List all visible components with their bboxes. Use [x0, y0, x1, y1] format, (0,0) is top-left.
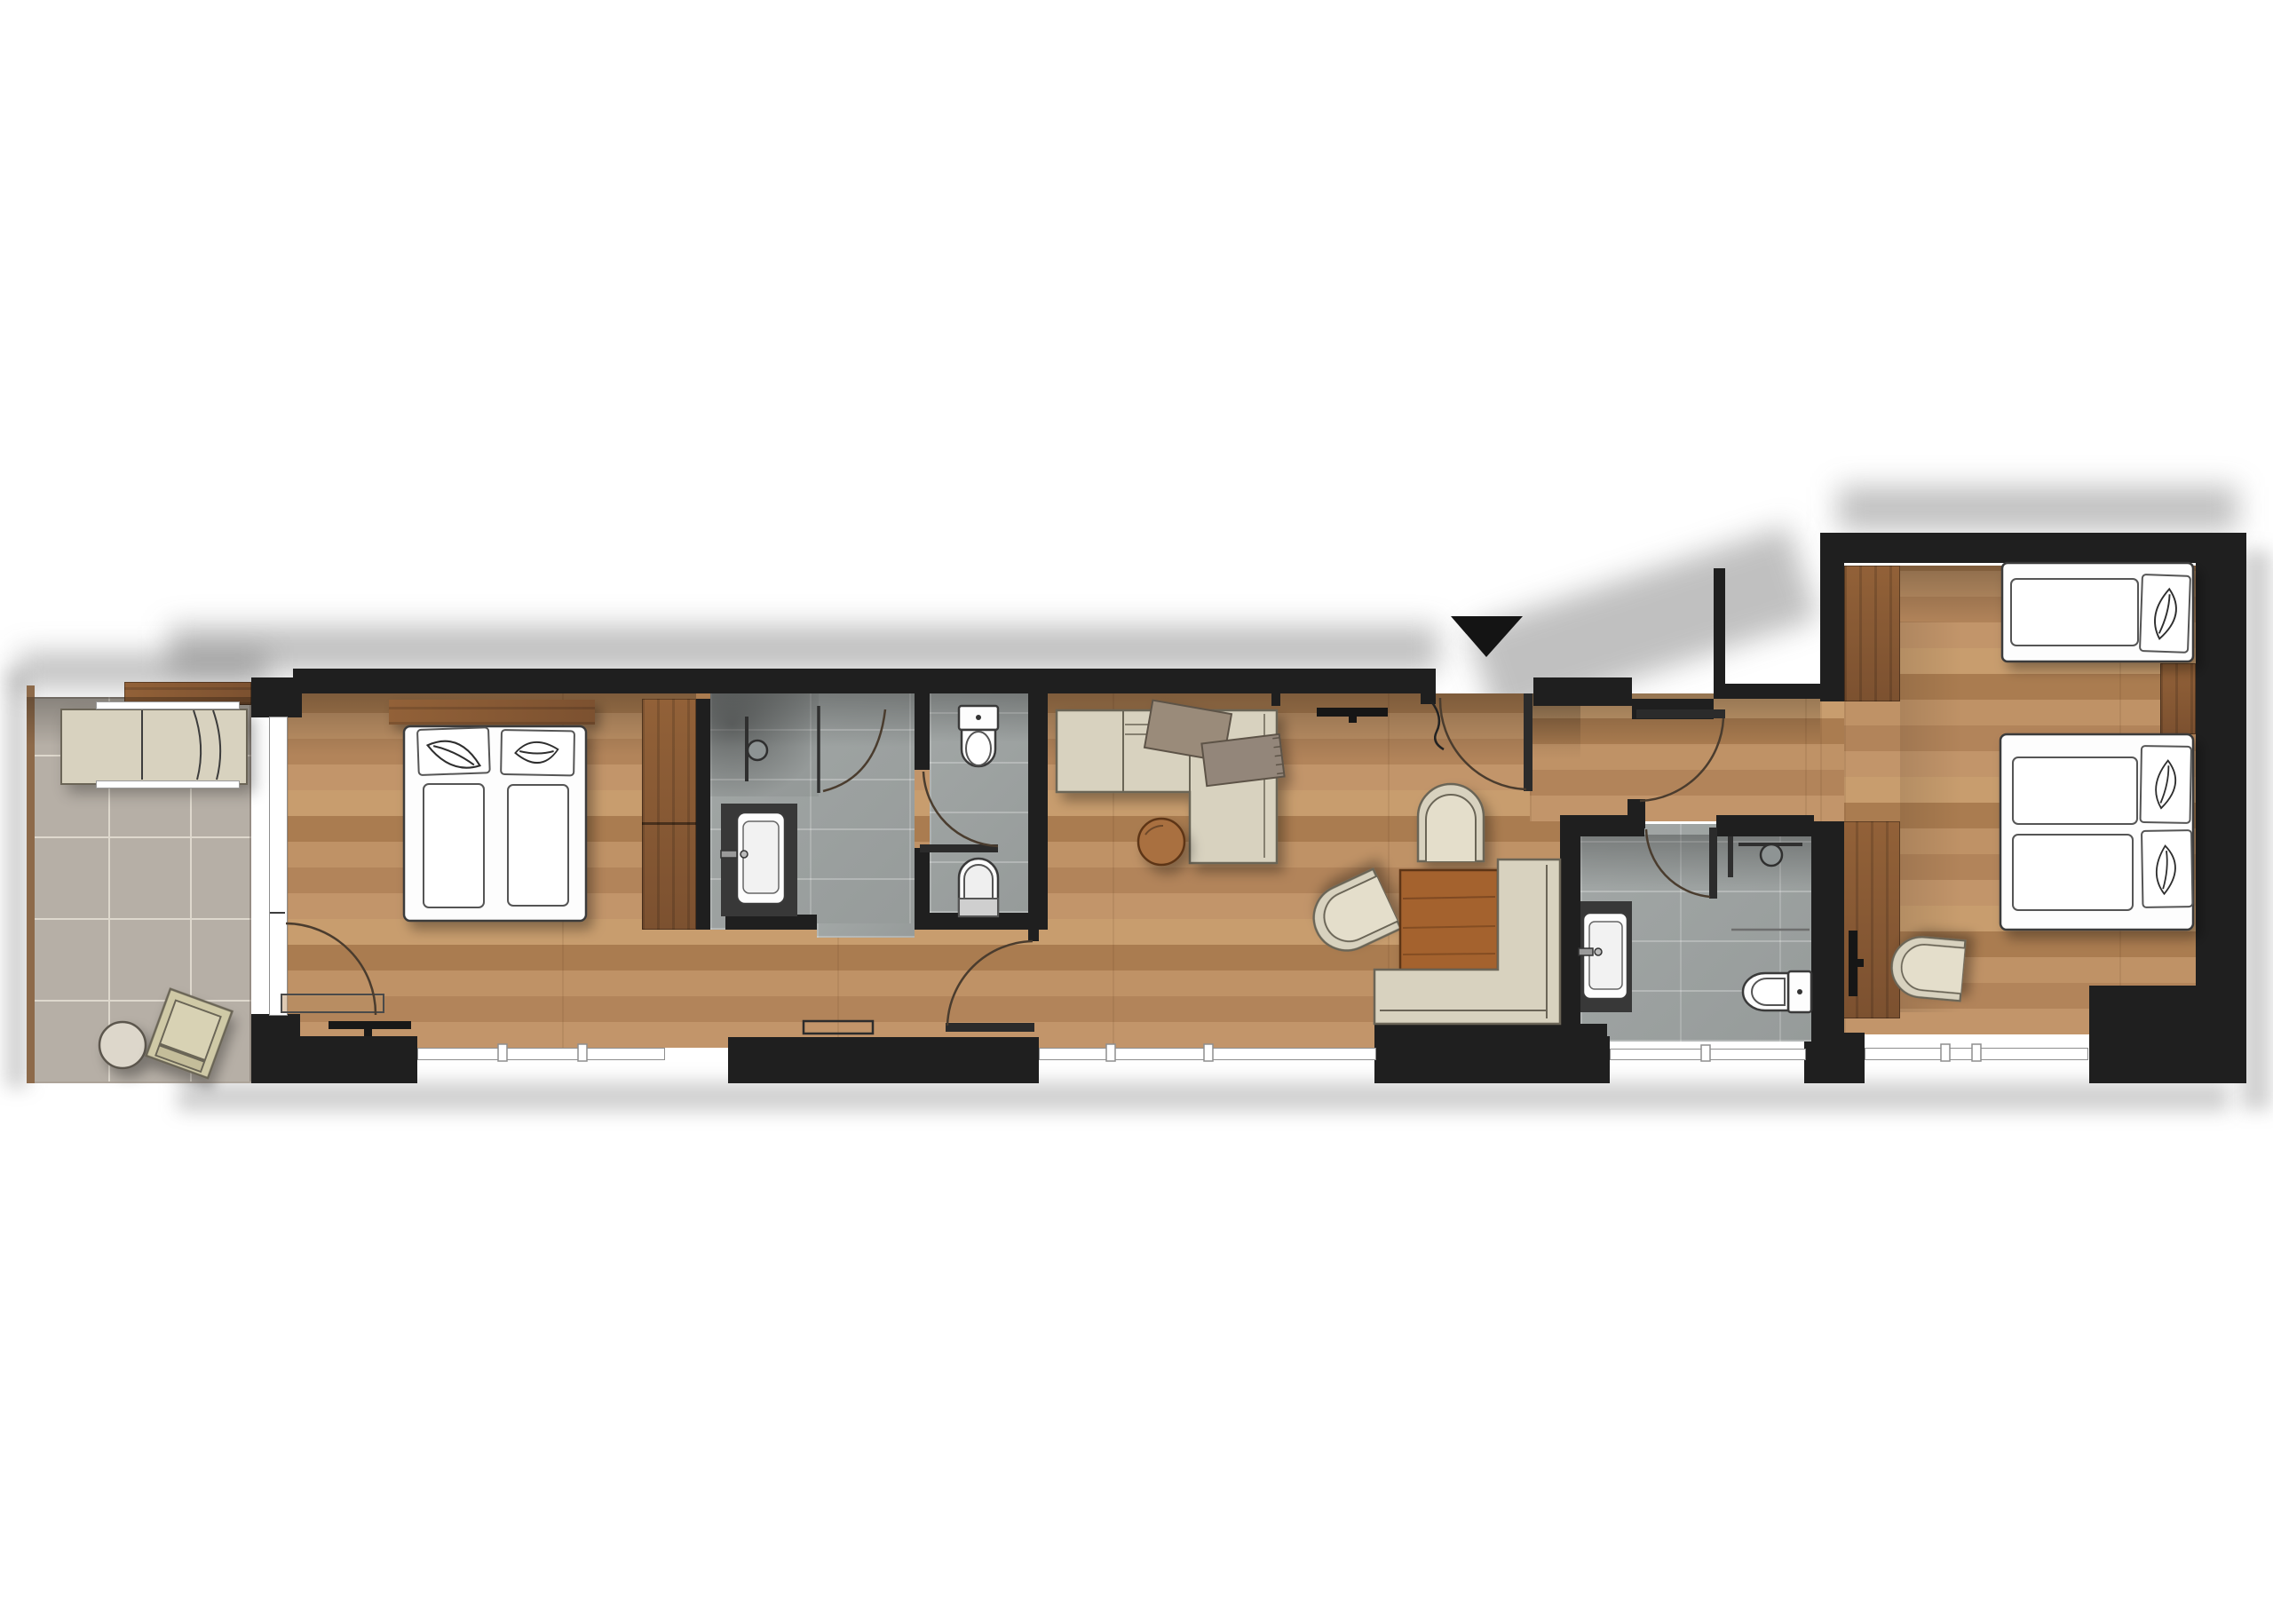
terrace-lounge-chair: [147, 989, 233, 1078]
bathroom1-vanity: [721, 804, 797, 916]
entrance-door: [1440, 693, 1532, 791]
door-wc: [920, 772, 998, 852]
bedroom1-low-console: [281, 994, 384, 1012]
bedroom1-wall-tv: [329, 1021, 411, 1036]
round-coffee-table: [1138, 819, 1184, 865]
plan-linework: [0, 0, 2273, 1624]
barrel-chair-west: [1303, 869, 1401, 962]
bathroom2-vanity: [1579, 901, 1632, 1012]
double-bed-bedroom2: [2000, 734, 2193, 930]
door-bathroom2: [1646, 828, 1717, 899]
living-wall-tv: [1317, 708, 1388, 723]
single-bed-bedroom2: [2002, 563, 2193, 661]
bathroom2-toilet: [1743, 971, 1811, 1012]
living-wall-console: [804, 1021, 873, 1034]
door-arc-bathroom1: [823, 709, 885, 791]
floor-lamp-cord: [1431, 701, 1444, 749]
floor-plan-canvas: [0, 0, 2273, 1624]
door-passage: [946, 941, 1034, 1032]
bedroom2-side-chair: [1889, 934, 1966, 1001]
bathroom1-shower: [747, 717, 767, 781]
bedroom2-wall-tv: [1849, 931, 1864, 996]
square-dining-table: [1400, 870, 1498, 970]
wc-bidet: [959, 859, 998, 916]
double-bed-bedroom1: [404, 726, 586, 921]
sun-lounger-lines: [142, 710, 220, 780]
window-mullions: [498, 1044, 1981, 1061]
terrace-side-table: [99, 1022, 146, 1068]
wc-toilet: [959, 706, 998, 766]
barrel-chair-north: [1418, 784, 1484, 861]
door-corridor: [1636, 709, 1725, 801]
entrance-marker-triangle: [1451, 616, 1523, 657]
bathroom2-shower: [1728, 836, 1810, 930]
